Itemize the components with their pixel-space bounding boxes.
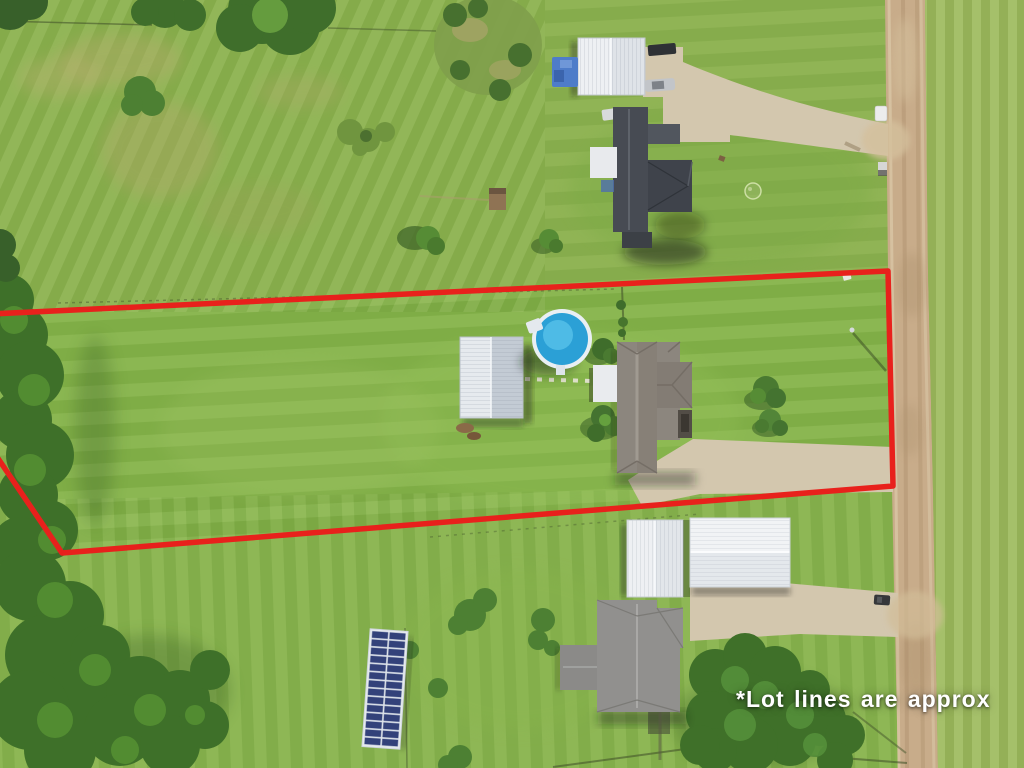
pool-ladder <box>556 365 565 375</box>
fire-pit-ring <box>745 183 761 199</box>
lot-lines-disclaimer: *Lot lines are approx <box>736 686 991 713</box>
bottom-metal-buildings <box>621 518 790 597</box>
middle-house-carport <box>593 365 617 402</box>
aerial-photo: *Lot lines are approx <box>0 0 1024 768</box>
middle-shed <box>456 337 532 440</box>
right-verge-grass <box>925 0 1024 768</box>
roadside-trailer <box>875 106 887 121</box>
top-house-carport <box>590 147 617 178</box>
aerial-scene <box>0 0 1024 768</box>
solar-panel-array <box>362 629 413 750</box>
